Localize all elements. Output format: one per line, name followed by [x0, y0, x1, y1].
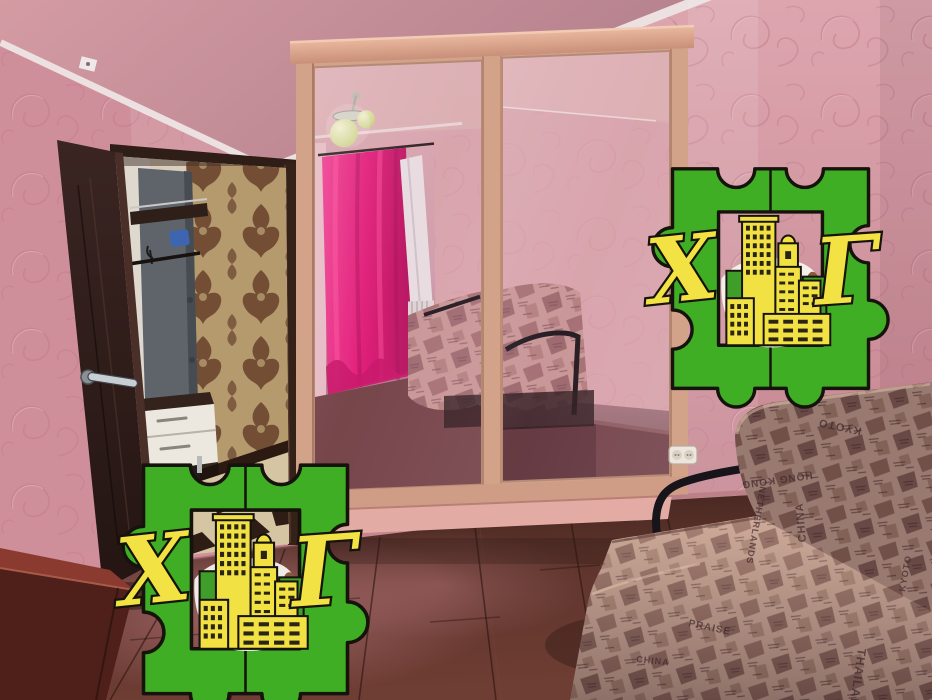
watermark-bottom-left [107, 465, 368, 700]
room-photo: Х Г [0, 0, 932, 700]
mirror-door-left [314, 61, 482, 492]
power-socket [669, 446, 697, 464]
wardrobe [290, 26, 694, 536]
blue-item [169, 229, 190, 247]
room-svg: Х Г [0, 0, 932, 700]
mirror-door-right [502, 51, 670, 484]
watermark-top-right [637, 169, 888, 407]
drawer-leg [197, 456, 202, 473]
